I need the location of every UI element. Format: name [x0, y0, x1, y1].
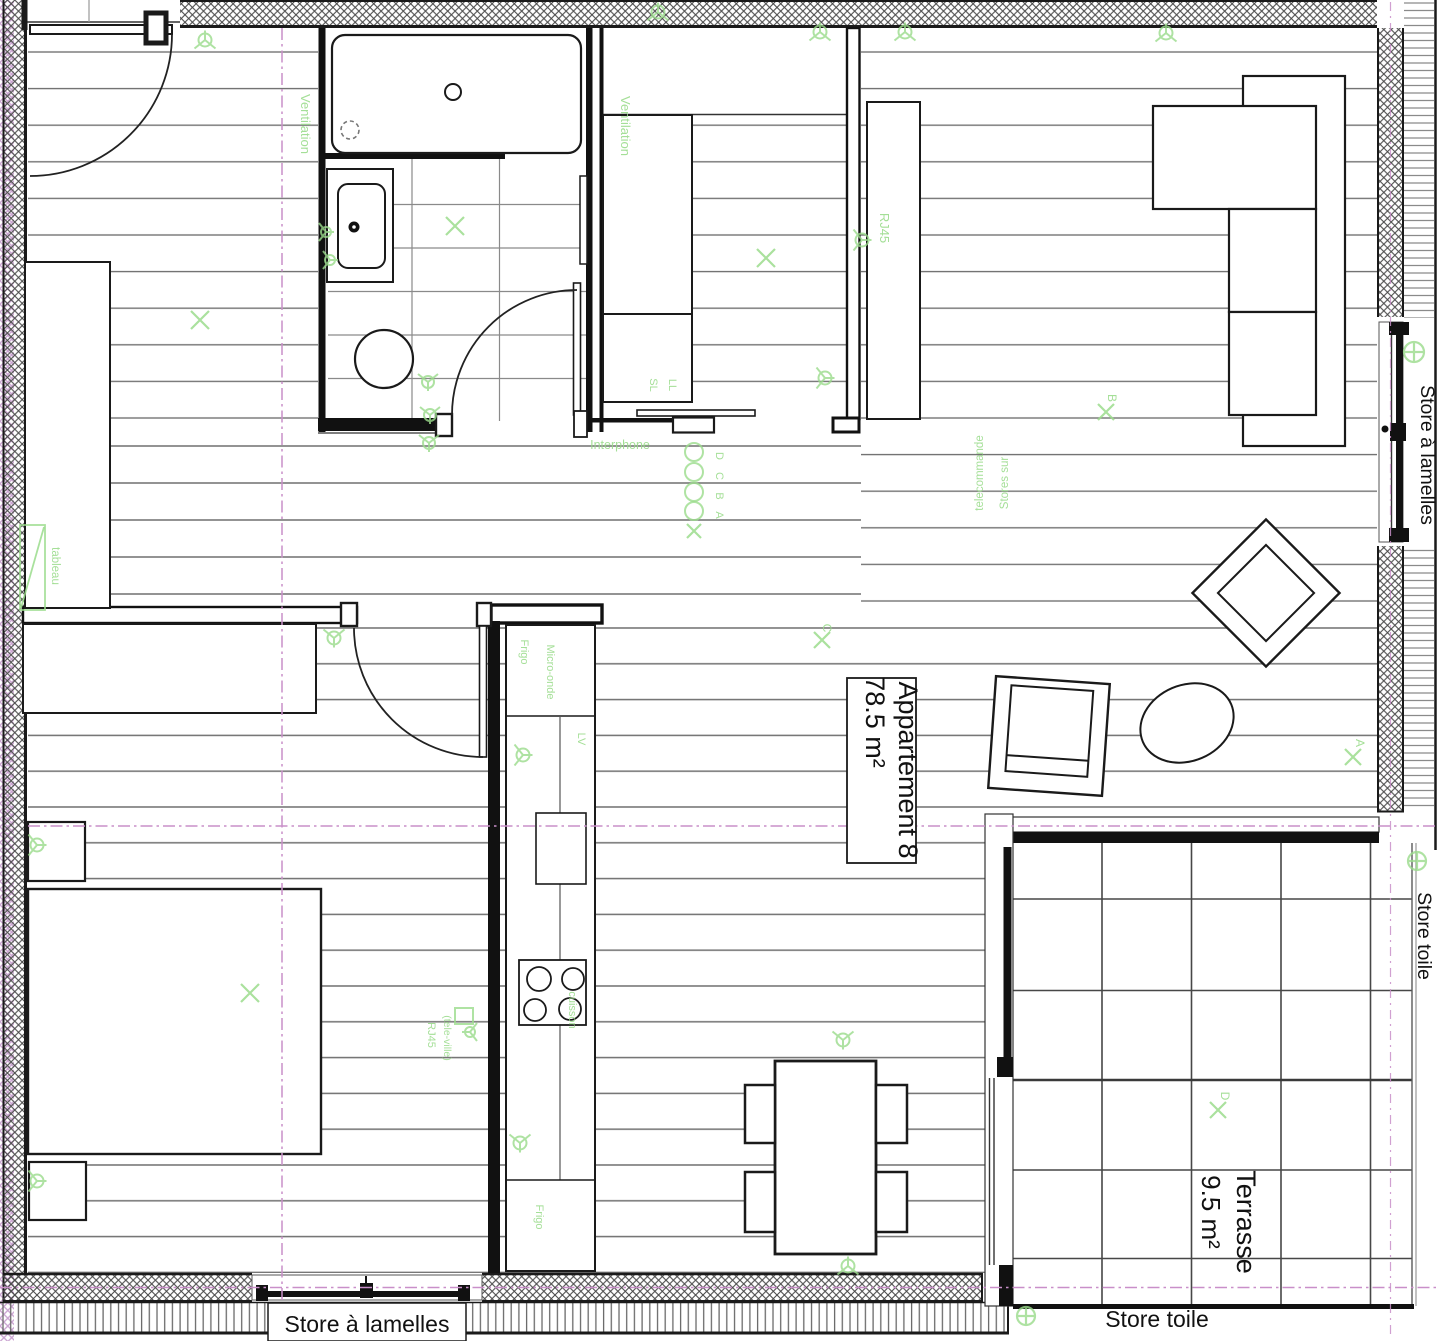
svg-text:C: C: [713, 472, 725, 480]
svg-text:Store à lamelles: Store à lamelles: [285, 1311, 450, 1337]
svg-text:telecommande: telecommande: [974, 435, 986, 510]
svg-text:Frigo: Frigo: [518, 639, 530, 664]
svg-text:cuisson: cuisson: [566, 991, 578, 1028]
svg-text:SL: SL: [647, 378, 659, 391]
svg-text:(tele-ville): (tele-ville): [441, 1015, 453, 1061]
svg-text:B: B: [1105, 394, 1119, 402]
svg-text:Ventilation: Ventilation: [298, 94, 313, 154]
svg-text:Stores sur: Stores sur: [999, 457, 1011, 510]
svg-text:D: D: [713, 452, 725, 460]
svg-text:B: B: [713, 492, 725, 499]
svg-text:78.5 m²: 78.5 m²: [860, 676, 890, 768]
svg-text:RJ45: RJ45: [425, 1022, 437, 1048]
svg-text:D: D: [1218, 1092, 1232, 1101]
svg-text:C: C: [820, 624, 834, 633]
svg-text:LL: LL: [666, 379, 678, 391]
svg-text:Appartement 8: Appartement 8: [893, 681, 923, 858]
svg-text:LV: LV: [575, 733, 587, 746]
svg-text:Terrasse: Terrasse: [1231, 1170, 1261, 1274]
svg-text:9.5 m²: 9.5 m²: [1196, 1175, 1226, 1249]
svg-text:Store toile: Store toile: [1413, 892, 1435, 980]
svg-text:Ventilation: Ventilation: [618, 96, 633, 156]
svg-text:Micro-onde: Micro-onde: [544, 644, 556, 699]
svg-text:Frigo: Frigo: [533, 1204, 545, 1229]
svg-text:Store toile: Store toile: [1105, 1306, 1209, 1332]
svg-text:A: A: [1353, 739, 1367, 747]
svg-text:tableau: tableau: [49, 547, 61, 585]
svg-text:A: A: [713, 511, 725, 519]
svg-text:Interphone: Interphone: [590, 438, 650, 452]
svg-text:RJ45: RJ45: [877, 213, 892, 243]
svg-text:Store à lamelles: Store à lamelles: [1416, 385, 1438, 525]
